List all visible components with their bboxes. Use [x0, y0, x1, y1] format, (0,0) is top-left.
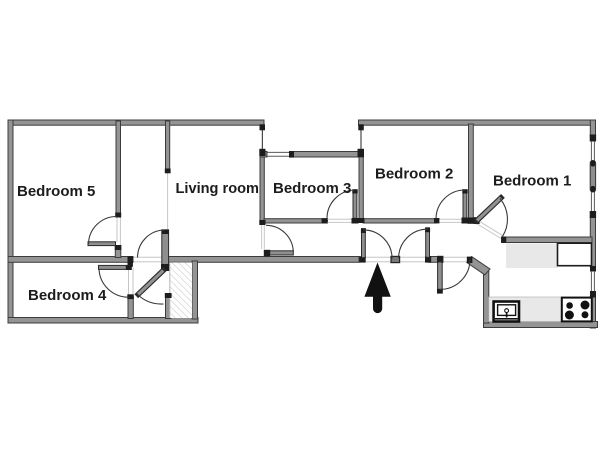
svg-text:Living room: Living room [176, 181, 260, 197]
svg-text:Bedroom 1: Bedroom 1 [493, 173, 571, 190]
svg-text:Bedroom 5: Bedroom 5 [17, 183, 95, 200]
svg-text:Bedroom 3: Bedroom 3 [273, 180, 351, 197]
svg-text:Bedroom 2: Bedroom 2 [375, 166, 453, 183]
svg-text:Bedroom 4: Bedroom 4 [28, 287, 107, 304]
